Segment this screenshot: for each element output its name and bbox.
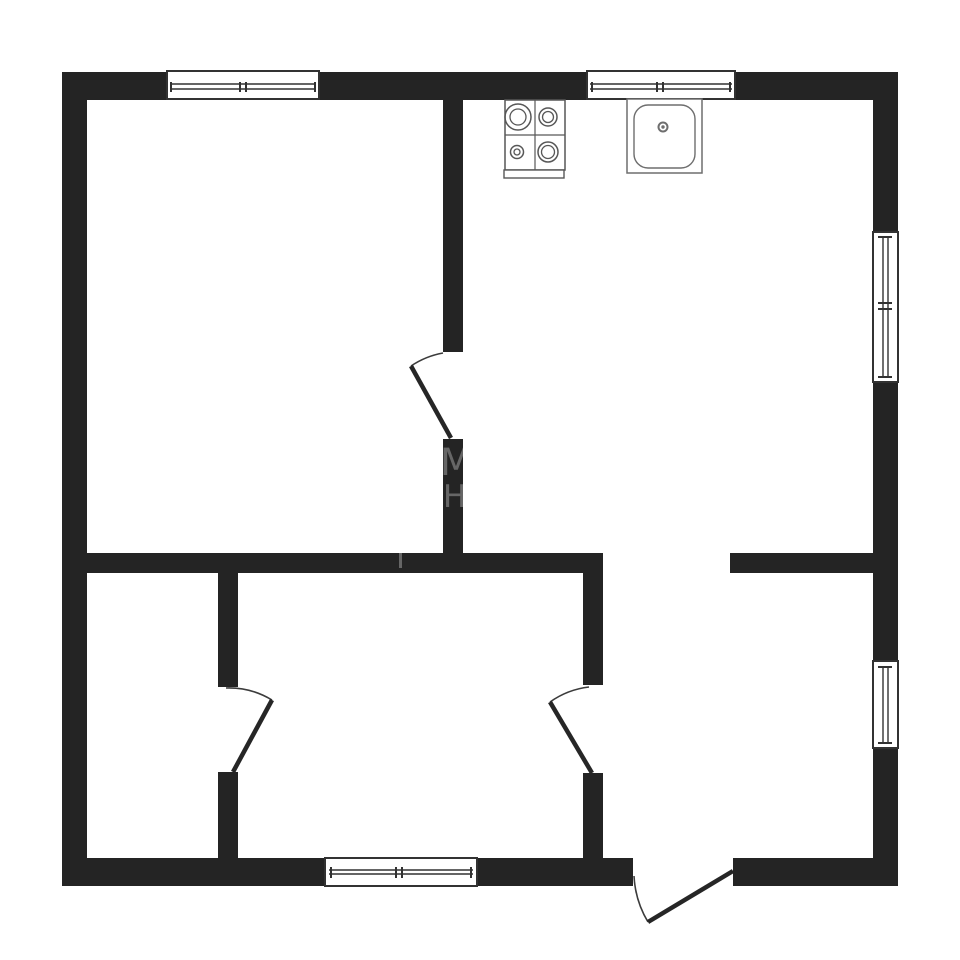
wall-exterior-bottom-right xyxy=(733,858,898,886)
window-right-upper xyxy=(873,232,898,382)
window-top-left-frame xyxy=(167,71,319,99)
sink-basin xyxy=(634,105,695,168)
window-right-lower xyxy=(873,661,898,748)
window-bottom xyxy=(325,858,477,886)
stove-icon xyxy=(504,100,565,178)
wall-interior-middle-left xyxy=(62,553,603,573)
wall-exterior-right xyxy=(873,72,898,886)
stove-tray xyxy=(504,170,564,178)
interior-door-lower-right-leaf xyxy=(550,702,592,773)
wall-interior-lower-right-a xyxy=(583,573,603,685)
floor-plan-canvas xyxy=(0,0,960,960)
sink-icon xyxy=(627,99,702,173)
interior-door-lower-left-leaf xyxy=(233,700,272,772)
interior-door-lower-right-swing-arc xyxy=(550,687,589,702)
sink-drain-dot xyxy=(661,125,664,128)
entrance-door-swing-arc xyxy=(634,876,648,922)
interior-door-lower-left-swing-arc xyxy=(226,688,272,700)
interior-door-lower-right xyxy=(550,687,592,773)
wall-interior-lower-right-b xyxy=(583,773,603,858)
interior-door-lower-left xyxy=(226,688,272,772)
entrance-door-leaf xyxy=(648,871,733,922)
wall-interior-vertical-upper-b xyxy=(443,439,463,573)
interior-door-upper xyxy=(411,353,451,438)
wall-exterior-left xyxy=(62,72,87,886)
window-top-left xyxy=(167,71,319,99)
wall-interior-vertical-upper-a xyxy=(443,100,463,352)
floor-plan: М НЕ xyxy=(0,0,960,960)
window-right-upper-frame xyxy=(873,232,898,382)
interior-door-upper-swing-arc xyxy=(411,353,443,366)
entrance-door xyxy=(634,871,733,922)
window-right-lower-frame xyxy=(873,661,898,748)
window-top-right-frame xyxy=(587,71,735,99)
window-top-right xyxy=(587,71,735,99)
wall-interior-lower-left-a xyxy=(218,573,238,687)
interior-door-upper-leaf xyxy=(411,366,451,438)
wall-interior-middle-right xyxy=(730,553,898,573)
wall-interior-lower-left-b xyxy=(218,772,238,858)
